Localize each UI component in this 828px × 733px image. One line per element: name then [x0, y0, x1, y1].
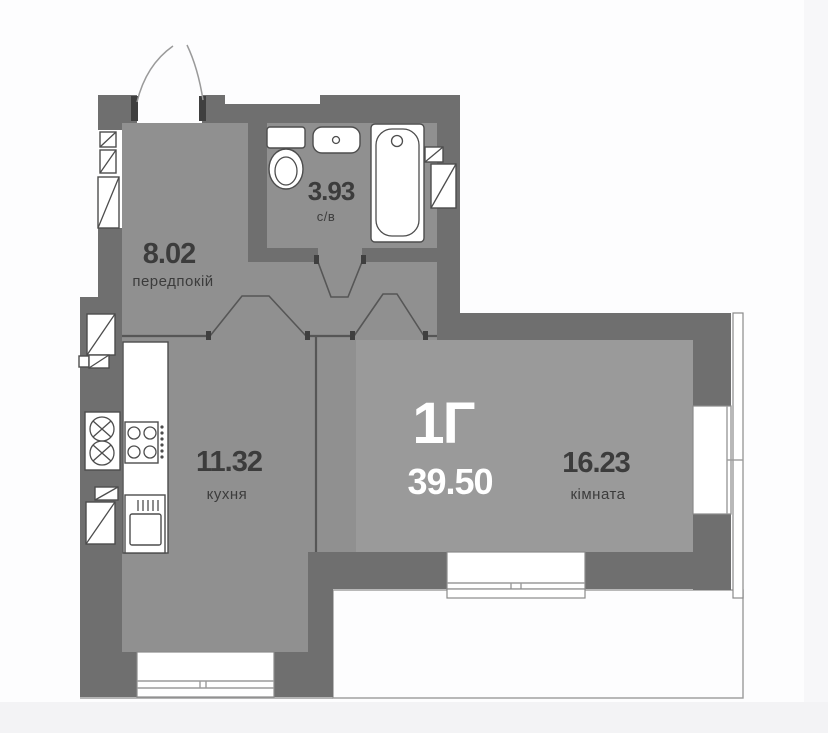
bathroom-area-label: 3.93 [308, 176, 355, 206]
wall-kitchen-bottom-left [80, 652, 137, 697]
duct-shaft-box [79, 356, 89, 367]
bathroom-name-label: с/в [317, 209, 336, 224]
wall-room-bottom-left [316, 552, 447, 589]
kitchen-name-label: кухня [207, 486, 248, 503]
living-room-name-label: кімната [570, 486, 625, 503]
floor-plan-page: 8.02 передпокій 3.93 с/в 11.32 кухня 16.… [0, 0, 828, 733]
wall-bathroom-south-left [267, 248, 318, 262]
door-jamb [314, 255, 319, 264]
door-jamb [206, 331, 211, 340]
kitchen-fixtures [123, 342, 168, 553]
page-right-shade [804, 0, 828, 733]
living-room-floor-inset [356, 340, 695, 552]
living-room-area-label: 16.23 [562, 447, 630, 479]
living-room-side-window [693, 406, 731, 514]
bathtub [371, 124, 424, 242]
entrance-door-swing [137, 46, 173, 102]
wall-room-top [437, 313, 731, 340]
wall-right-upper [693, 340, 731, 406]
entrance-door-swing [187, 45, 203, 100]
wall-kitchen-bottom-right [274, 652, 308, 697]
kitchen-sink-basin [130, 514, 161, 545]
door-jamb [350, 331, 355, 340]
door-jamb [305, 331, 310, 340]
door-jamb [361, 255, 366, 264]
kitchen-area-label: 11.32 [196, 446, 262, 478]
wall-step-kitchen [308, 552, 333, 697]
wall-bathroom-south-right [362, 248, 437, 262]
wall-bathroom-west [248, 123, 267, 262]
unit-total-area-label: 39.50 [407, 461, 492, 502]
window-outer-sill [733, 313, 743, 598]
wall-east-block [437, 95, 460, 340]
unit-type-label: 1Г [412, 391, 474, 456]
bathroom-sink [313, 127, 360, 153]
toilet-bowl [269, 149, 303, 189]
page-bottom-shade [0, 702, 828, 733]
terrace-outline [333, 590, 743, 698]
entrance-door [131, 45, 206, 121]
window-outer-sill [447, 589, 585, 598]
kitchen-window [137, 652, 274, 697]
hallway-area-label: 8.02 [143, 238, 195, 270]
wall-room-bottom-right [585, 552, 731, 589]
floor-plan-drawing: 8.02 передпокій 3.93 с/в 11.32 кухня 16.… [0, 0, 828, 733]
door-jamb [423, 331, 428, 340]
toilet-tank [267, 127, 305, 148]
hallway-name-label: передпокій [132, 273, 213, 290]
wall-top-step [225, 104, 320, 123]
